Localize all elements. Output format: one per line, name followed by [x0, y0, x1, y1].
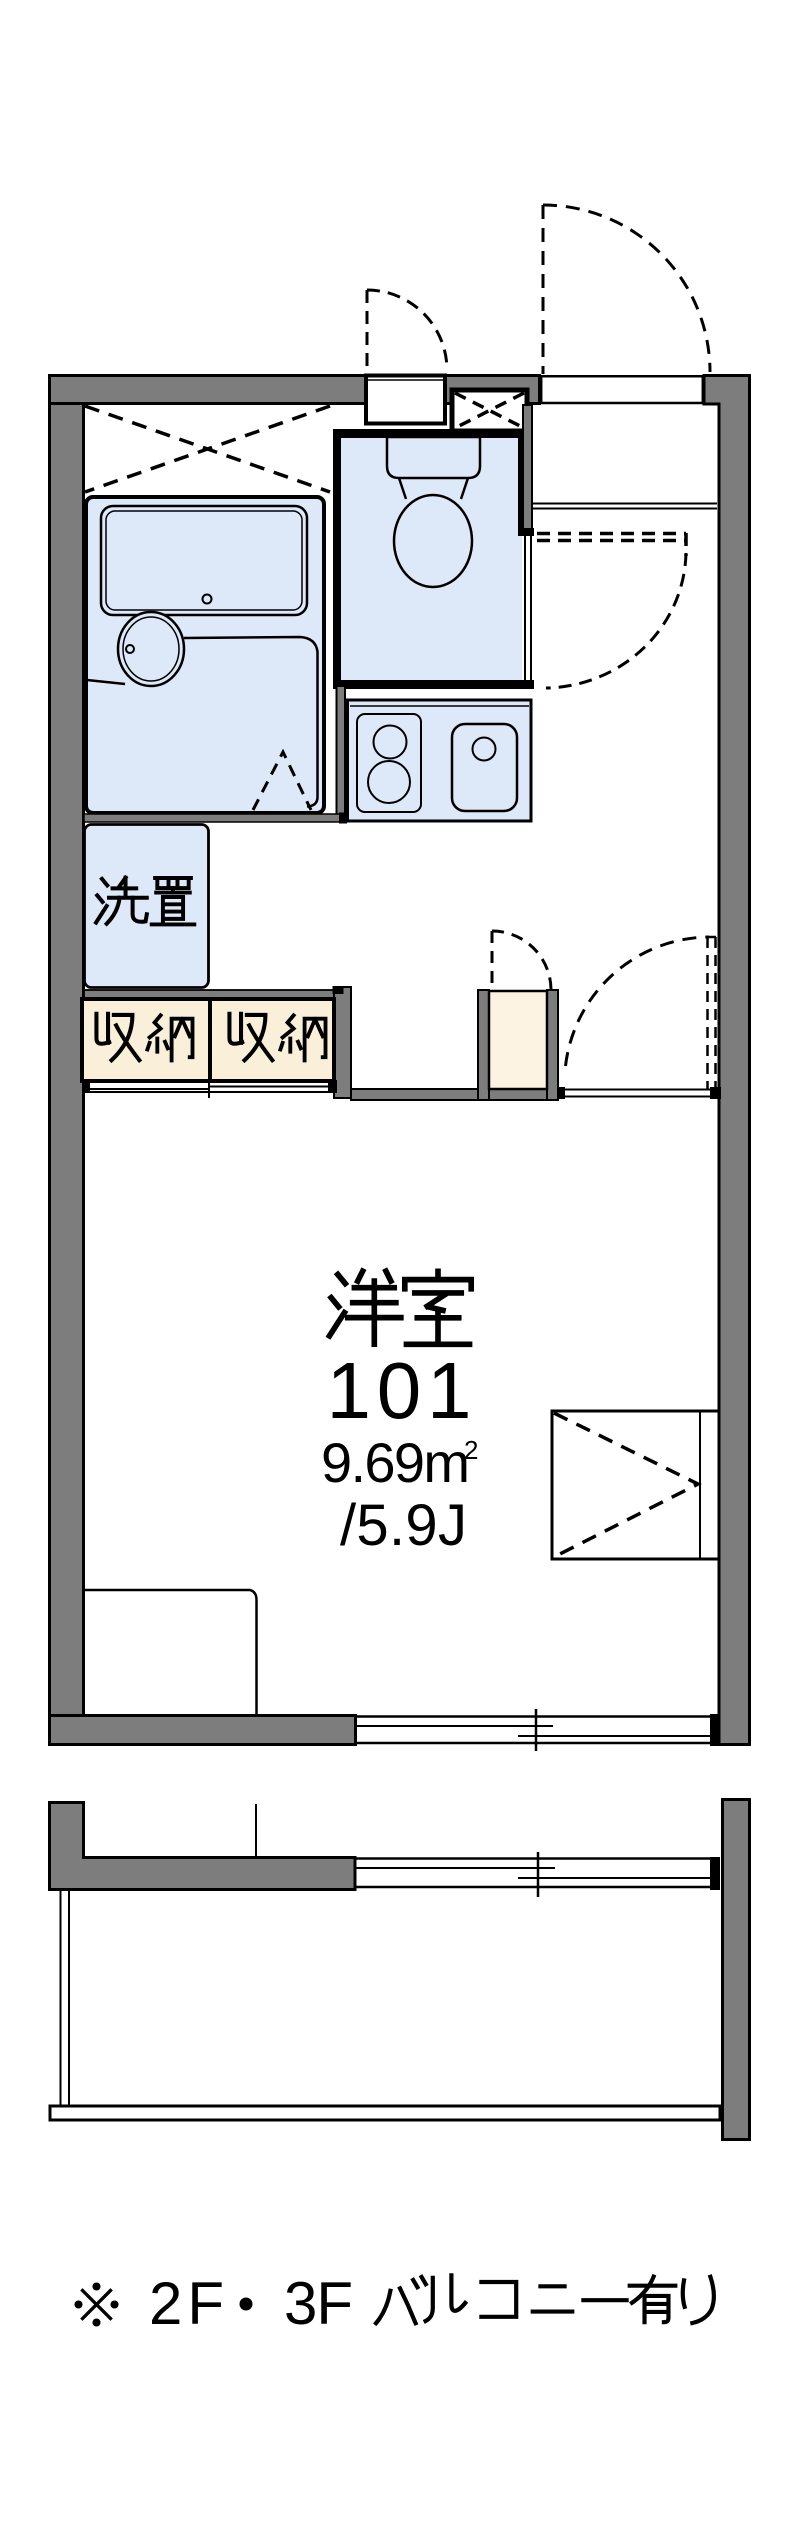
svg-text:/5.9J: /5.9J — [340, 1493, 467, 1558]
svg-text:2: 2 — [464, 1435, 478, 1465]
svg-text:3F: 3F — [284, 2270, 353, 2337]
svg-text:2F: 2F — [149, 2270, 224, 2337]
svg-text:9.69m: 9.69m — [321, 1431, 470, 1494]
svg-text:101: 101 — [327, 1346, 472, 1435]
